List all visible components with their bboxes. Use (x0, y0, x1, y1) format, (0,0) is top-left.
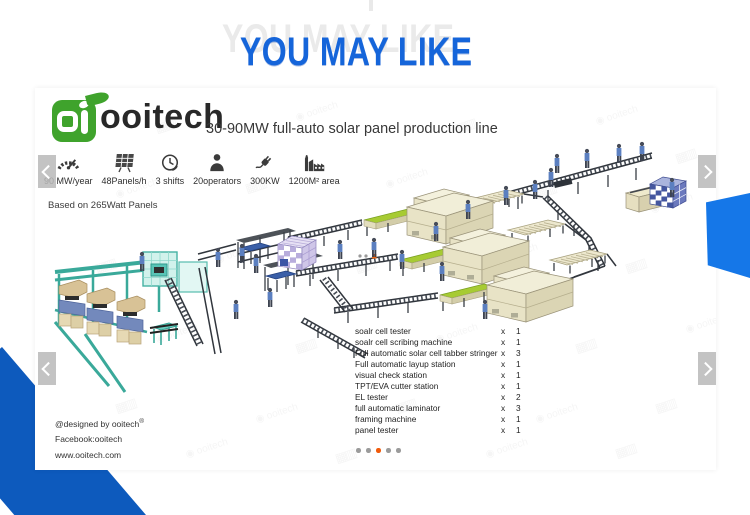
equipment-qty: 1 (516, 326, 528, 336)
pagination-dot[interactable] (386, 448, 391, 453)
pagination-dot[interactable] (366, 448, 371, 453)
watermark: ◉ ooitech (594, 104, 639, 128)
chevron-right-icon (699, 164, 713, 178)
website-line: www.ooitech.com (55, 450, 144, 460)
watermark: ◉ ooitech (184, 437, 229, 461)
equipment-row: TPT/EVA cutter stationx1 (355, 380, 528, 391)
watermark: ▦▥ (613, 440, 638, 462)
chevron-left-icon (41, 164, 55, 178)
product-slide-card[interactable]: ▦▥◉ ooitech▦▥◉ ooitech▦▥◉ ooitech▦▥◉ ooi… (35, 88, 716, 470)
equipment-name: Full automatic layup station (355, 359, 501, 369)
equipment-name: TPT/EVA cutter station (355, 381, 501, 391)
equipment-name: soalr cell scribing machine (355, 337, 501, 347)
top-center-tick (369, 0, 373, 11)
equipment-list: soalr cell testerx1 soalr cell scribing … (355, 325, 528, 435)
pagination-dot[interactable] (356, 448, 361, 453)
equipment-name: framing machine (355, 414, 501, 424)
equipment-qty: 2 (516, 392, 528, 402)
card-footer: @designed by ooitech® Facebook:ooitech w… (55, 418, 144, 465)
equipment-row: full automatic laminatorx3 (355, 402, 528, 413)
carousel-prev-button-bottom[interactable] (38, 352, 56, 385)
equipment-qty: 3 (516, 403, 528, 413)
carousel-next-button-top[interactable] (698, 155, 716, 188)
equipment-qty: 1 (516, 359, 528, 369)
registered-trademark: ® (139, 418, 144, 425)
pagination-dots (356, 448, 401, 453)
equipment-name: soalr cell tester (355, 326, 501, 336)
watermark: ▦▥ (333, 445, 358, 467)
equipment-qty: 1 (516, 414, 528, 424)
equipment-row: visual check stationx1 (355, 369, 528, 380)
right-blue-decoration (706, 193, 750, 278)
chevron-left-icon (41, 361, 55, 375)
equipment-row: Full automatic layup stationx1 (355, 358, 528, 369)
equipment-row: EL testerx2 (355, 391, 528, 402)
equipment-qty: 1 (516, 381, 528, 391)
logo-o-glyph (57, 111, 78, 132)
equipment-row: panel testerx1 (355, 424, 528, 435)
equipment-row: Full automatic solar cell tabber stringe… (355, 347, 528, 358)
equipment-qty: 1 (516, 370, 528, 380)
facebook-line: Facebook:ooitech (55, 434, 144, 444)
equipment-name: full automatic laminator (355, 403, 501, 413)
chevron-right-icon (699, 361, 713, 375)
equipment-name: visual check station (355, 370, 501, 380)
equipment-row: soalr cell testerx1 (355, 325, 528, 336)
product-tagline: 30-90MW full-auto solar panel production… (206, 121, 498, 137)
carousel-prev-button-top[interactable] (38, 155, 56, 188)
designed-by-line: @designed by ooitech® (55, 418, 144, 429)
logo-i-glyph (81, 110, 88, 134)
equipment-row: soalr cell scribing machinex1 (355, 336, 528, 347)
watermark: ◉ ooitech (294, 100, 339, 124)
equipment-name: Full automatic solar cell tabber stringe… (355, 348, 501, 358)
pagination-dot[interactable] (396, 448, 401, 453)
equipment-name: panel tester (355, 425, 501, 435)
pagination-dot[interactable] (376, 448, 381, 453)
carousel-next-button-bottom[interactable] (698, 352, 716, 385)
equipment-qty: 1 (516, 337, 528, 347)
ooitech-logo-icon (52, 100, 96, 142)
equipment-qty: 1 (516, 425, 528, 435)
section-title: YOU MAY LIKE (240, 30, 472, 75)
you-may-like-section: YOU MAY LIKE YOU MAY LIKE ▦▥◉ ooitech▦▥◉… (0, 0, 750, 515)
equipment-name: EL tester (355, 392, 501, 402)
equipment-row: framing machinex1 (355, 413, 528, 424)
watermark: ◉ ooitech (484, 437, 529, 461)
equipment-qty: 3 (516, 348, 528, 358)
